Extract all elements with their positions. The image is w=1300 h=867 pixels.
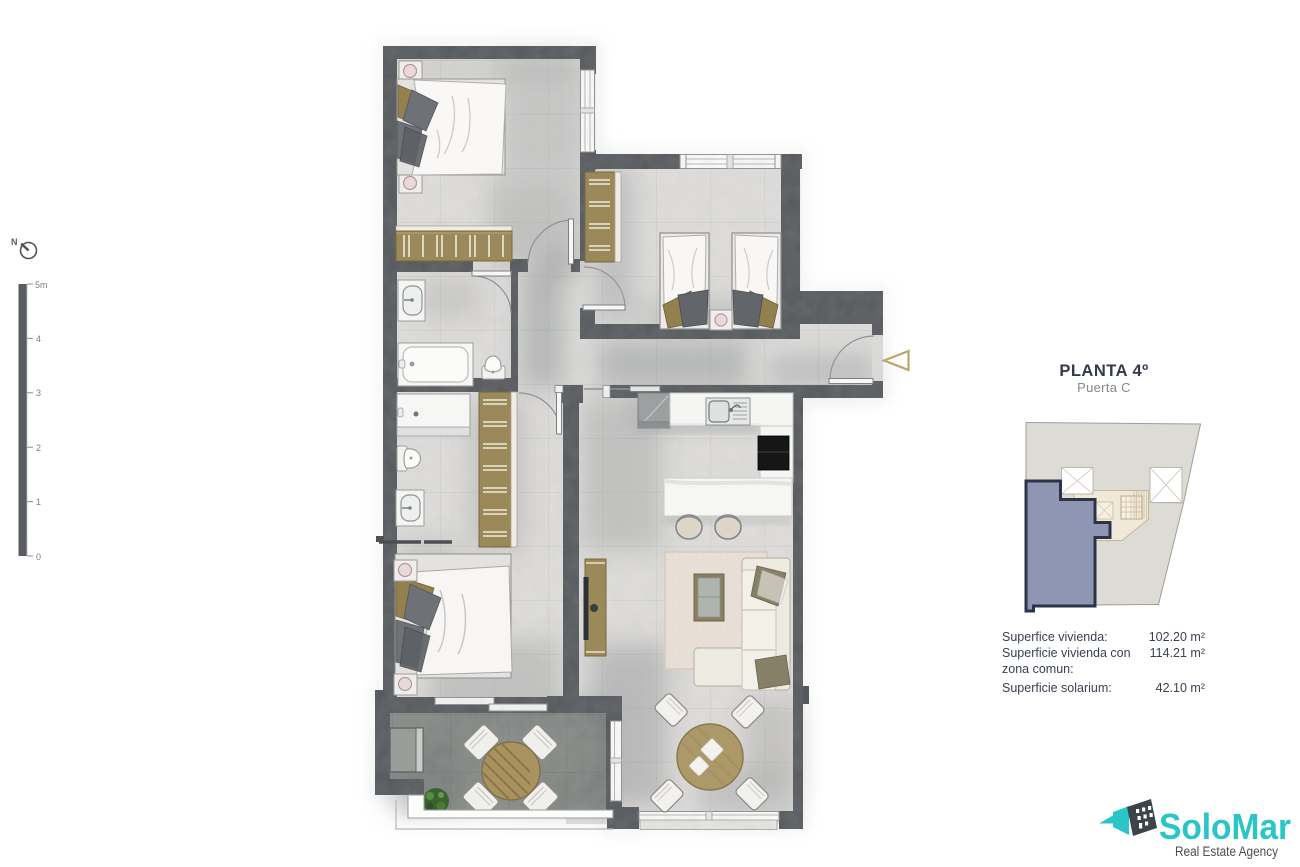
svg-text:SoloMar: SoloMar (1159, 806, 1291, 847)
svg-text:2: 2 (36, 443, 41, 453)
svg-text:1: 1 (36, 497, 41, 507)
svg-text:102.20 m²: 102.20 m² (1149, 630, 1205, 644)
svg-text:N: N (11, 237, 18, 247)
svg-text:114.21 m²: 114.21 m² (1150, 646, 1205, 660)
svg-text:zona comun:: zona comun: (1002, 662, 1074, 676)
svg-text:Puerta C: Puerta C (1077, 380, 1131, 395)
svg-text:3: 3 (36, 388, 41, 398)
svg-text:5m: 5m (35, 280, 48, 290)
svg-text:Superficie solarium:: Superficie solarium: (1002, 681, 1112, 695)
svg-text:PLANTA 4º: PLANTA 4º (1059, 362, 1148, 380)
svg-text:Real Estate Agency: Real Estate Agency (1175, 844, 1278, 859)
svg-text:Superfice vivienda:: Superfice vivienda: (1002, 630, 1108, 644)
svg-text:4: 4 (36, 334, 41, 344)
svg-text:42.10 m²: 42.10 m² (1156, 681, 1205, 695)
svg-text:Superficie vivienda con: Superficie vivienda con (1002, 646, 1131, 660)
svg-text:0: 0 (36, 552, 41, 562)
